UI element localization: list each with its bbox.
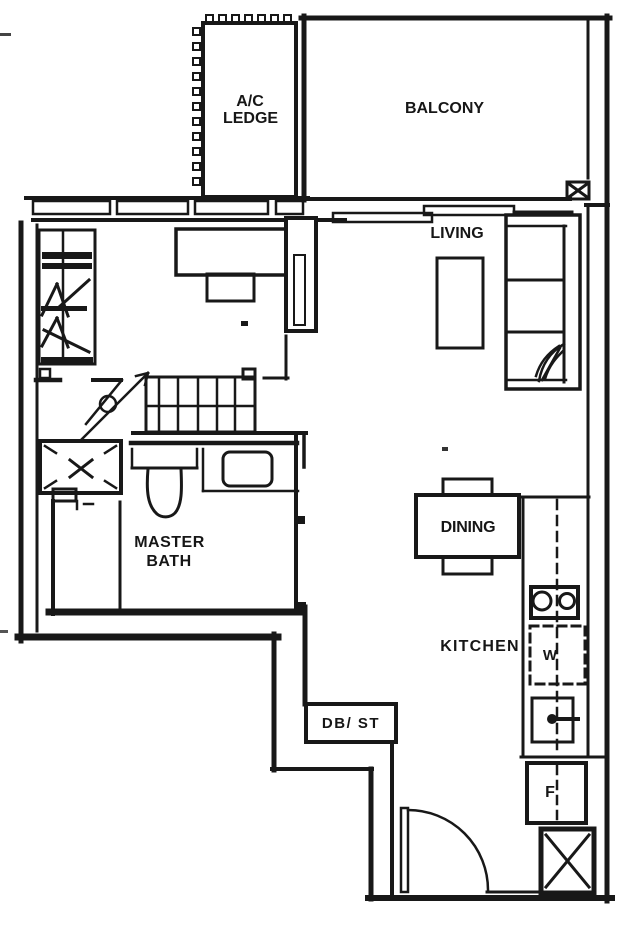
svg-text:KITCHEN: KITCHEN: [440, 638, 520, 655]
svg-text:DB/ ST: DB/ ST: [322, 715, 380, 732]
svg-text:DINING: DINING: [441, 519, 496, 536]
svg-text:A/C: A/C: [236, 93, 264, 110]
svg-text:LEDGE: LEDGE: [223, 110, 278, 127]
svg-text:BATH: BATH: [146, 553, 191, 570]
svg-text:W: W: [543, 647, 558, 664]
svg-text:F: F: [545, 784, 555, 801]
svg-text:LIVING: LIVING: [430, 225, 483, 242]
svg-text:BALCONY: BALCONY: [405, 100, 484, 117]
svg-text:MASTER: MASTER: [134, 534, 205, 551]
